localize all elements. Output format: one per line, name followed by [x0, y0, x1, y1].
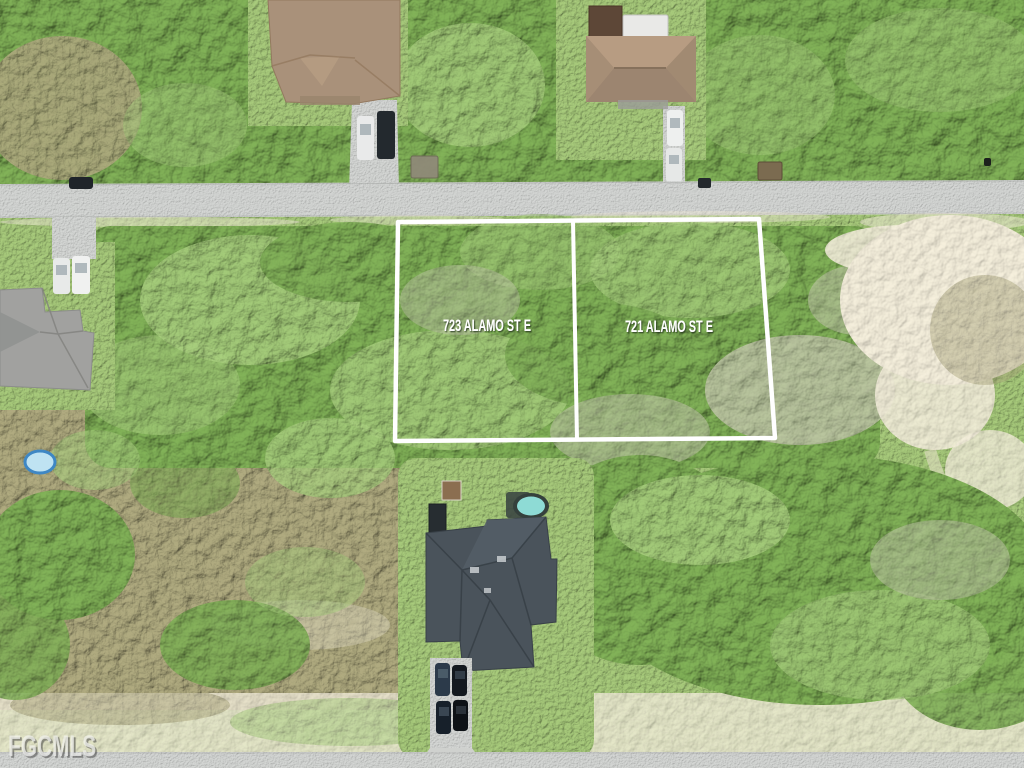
tree-clump [610, 475, 790, 565]
tree-clump [770, 590, 990, 700]
brown-shed [442, 481, 461, 500]
black-shed [429, 504, 446, 534]
bush-clump [50, 430, 140, 490]
car-windshield [438, 669, 448, 678]
dark-car [436, 701, 451, 734]
tree-clump [685, 35, 835, 155]
dark-car [453, 700, 468, 731]
parked-dark-car [698, 178, 711, 188]
sand-wash [825, 225, 985, 275]
house-roof-top-right [586, 36, 696, 102]
lot-label-721: 721 ALAMO ST E [625, 317, 713, 336]
tree-clump [123, 83, 247, 167]
roof-vent [484, 588, 491, 593]
dark-car [435, 663, 450, 696]
roof-vent [470, 567, 479, 573]
white-car [666, 148, 682, 182]
dark-shed [589, 6, 622, 38]
above-ground-pool [517, 497, 545, 516]
bush-clump [245, 547, 365, 617]
car-windshield [56, 265, 67, 275]
porch-top-right-house [618, 100, 668, 109]
sand-streak [0, 217, 300, 227]
street-bottom [0, 752, 1024, 768]
house-roof-top-left [268, 0, 400, 104]
tree-clump [395, 23, 545, 147]
car-windshield [75, 263, 87, 273]
white-van [357, 116, 374, 160]
parked-dark-car [69, 177, 93, 189]
utility-trailer [411, 156, 438, 178]
dead-tree-patch [870, 520, 1010, 600]
kiddie-pool [25, 451, 55, 473]
car-windshield [439, 707, 449, 716]
street-top [0, 180, 1024, 218]
bush-clump [130, 448, 240, 518]
driveway-left-house [52, 217, 96, 259]
mls-watermark: FGCMLS [8, 730, 96, 763]
wood-trailer [758, 162, 782, 180]
dark-suv [377, 111, 395, 159]
trash-can [984, 158, 991, 166]
van-windshield [360, 124, 371, 135]
porch-top-left-house [300, 96, 360, 105]
roof-vent [497, 556, 506, 562]
car-windshield [669, 155, 679, 164]
aerial-listing-photo: 723 ALAMO ST E 721 ALAMO ST E FGCMLS [0, 0, 1024, 768]
car-windshield [455, 671, 465, 679]
lot-label-723: 723 ALAMO ST E [443, 316, 531, 335]
bush-clump [265, 418, 395, 498]
car-windshield [670, 118, 680, 128]
dark-car [452, 665, 467, 696]
white-car [72, 256, 90, 294]
car-windshield [456, 706, 466, 714]
white-car [53, 258, 70, 294]
